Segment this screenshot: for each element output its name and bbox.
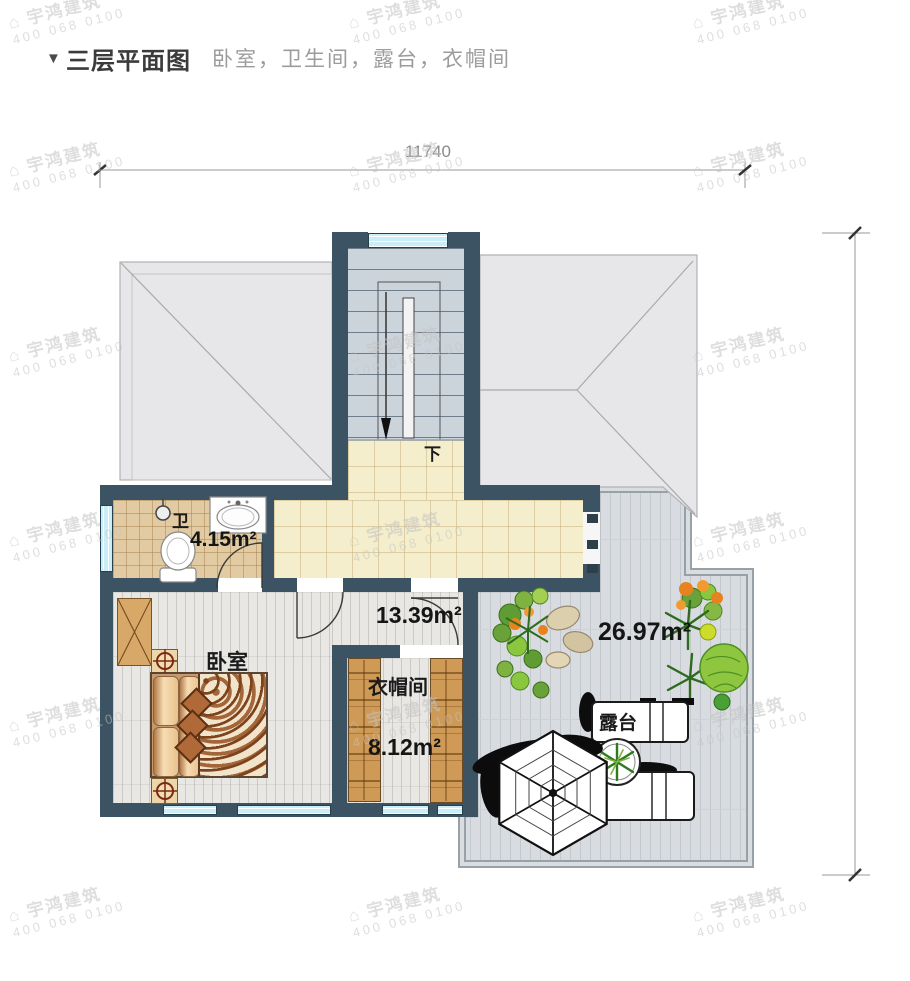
watermark: ⌂ 宇鸿建筑400 068 0100 — [347, 864, 530, 941]
right-roof — [480, 255, 697, 517]
page-title: 三层平面图 — [66, 41, 191, 76]
bedroom-window — [163, 805, 217, 815]
watermark: ⌂ 宇鸿建筑400 068 0100 — [691, 489, 874, 566]
wall — [458, 578, 600, 592]
wall — [332, 645, 400, 658]
stair-window — [368, 233, 448, 248]
wardrobe-column — [430, 658, 463, 803]
nightstand — [151, 649, 178, 673]
wall — [262, 578, 297, 592]
watermark-logo-icon: ⌂ — [7, 904, 24, 925]
bathroom-area: 4.15m² — [190, 528, 257, 552]
plant-cluster-left — [493, 588, 595, 698]
wall — [343, 578, 411, 592]
stair-landing-floor — [348, 440, 464, 500]
watermark: ⌂ 宇鸿建筑400 068 0100 — [7, 304, 190, 381]
watermark-logo-icon: ⌂ — [691, 344, 708, 365]
watermark-logo-icon: ⌂ — [7, 11, 24, 32]
floorplan-page: ▼ 三层平面图 卧室，卫生间，露台，衣帽间 — [0, 0, 910, 981]
watermark: ⌂ 宇鸿建筑400 068 0100 — [691, 304, 874, 381]
bed-pillow — [153, 727, 179, 777]
watermark-logo-icon: ⌂ — [347, 11, 364, 32]
watermark: ⌂ 宇鸿建筑400 068 0100 — [7, 119, 190, 196]
wall — [464, 232, 480, 500]
umbrella — [469, 731, 607, 855]
watermark-logo-icon: ⌂ — [691, 714, 708, 735]
corridor-floor — [274, 500, 583, 578]
bathroom-window — [100, 505, 113, 572]
watermark-logo-icon: ⌂ — [691, 159, 708, 180]
terrace-label: 露台 — [599, 708, 637, 735]
cloakroom-area: 8.12m² — [368, 734, 441, 761]
watermark: ⌂ 宇鸿建筑400 068 0100 — [691, 674, 874, 751]
slider-mark — [587, 564, 598, 573]
wall — [332, 232, 348, 500]
nightstand — [151, 778, 178, 804]
watermark-logo-icon: ⌂ — [691, 529, 708, 550]
wall — [262, 485, 274, 592]
page-subtitle: 卧室，卫生间，露台，衣帽间 — [212, 43, 511, 73]
cloakroom-window — [382, 805, 429, 815]
watermark-logo-icon: ⌂ — [347, 159, 364, 180]
cloakroom-window — [437, 805, 463, 815]
wall — [448, 232, 480, 248]
planter — [594, 739, 640, 785]
watermark: ⌂ 宇鸿建筑400 068 0100 — [691, 0, 874, 48]
wall — [332, 232, 368, 248]
wall — [100, 592, 113, 817]
bedroom-label: 卧室 — [206, 646, 248, 676]
slider-mark — [587, 514, 598, 523]
watermark-logo-icon: ⌂ — [347, 904, 364, 925]
wall — [583, 485, 600, 512]
dimension-line-right — [822, 227, 870, 881]
dimension-line-top — [94, 162, 751, 188]
terrace-area: 26.97m² — [598, 618, 691, 647]
watermark-logo-icon: ⌂ — [7, 159, 24, 180]
watermark: ⌂ 宇鸿建筑400 068 0100 — [7, 864, 190, 941]
watermark: ⌂ 宇鸿建筑400 068 0100 — [691, 119, 874, 196]
watermark: ⌂ 宇鸿建筑400 068 0100 — [347, 0, 530, 48]
wall — [332, 645, 347, 817]
slider-mark — [587, 540, 598, 549]
cloakroom-label: 衣帽间 — [368, 671, 428, 700]
wall — [113, 578, 218, 592]
watermark-logo-icon: ⌂ — [7, 344, 24, 365]
watermark-logo-icon: ⌂ — [7, 714, 24, 735]
bathroom-label: 卫 — [172, 507, 189, 532]
stairs-down-label: 下 — [424, 440, 441, 465]
bedroom-window — [237, 805, 331, 815]
closet-cabinet — [117, 598, 152, 666]
lounge-chair — [588, 762, 694, 820]
watermark: ⌂ 宇鸿建筑400 068 0100 — [691, 864, 874, 941]
wall — [463, 592, 478, 817]
section-collapse-icon[interactable]: ▼ — [46, 50, 61, 67]
dimension-value: 11740 — [383, 142, 473, 162]
left-roof — [120, 262, 332, 480]
watermark-logo-icon: ⌂ — [691, 11, 708, 32]
watermark-logo-icon: ⌂ — [7, 529, 24, 550]
wall — [100, 485, 332, 500]
bed-pillow — [153, 676, 179, 726]
staircase-floor — [348, 248, 464, 440]
wall — [480, 485, 600, 500]
hall-area: 13.39m² — [376, 602, 462, 629]
watermark-logo-icon: ⌂ — [691, 904, 708, 925]
